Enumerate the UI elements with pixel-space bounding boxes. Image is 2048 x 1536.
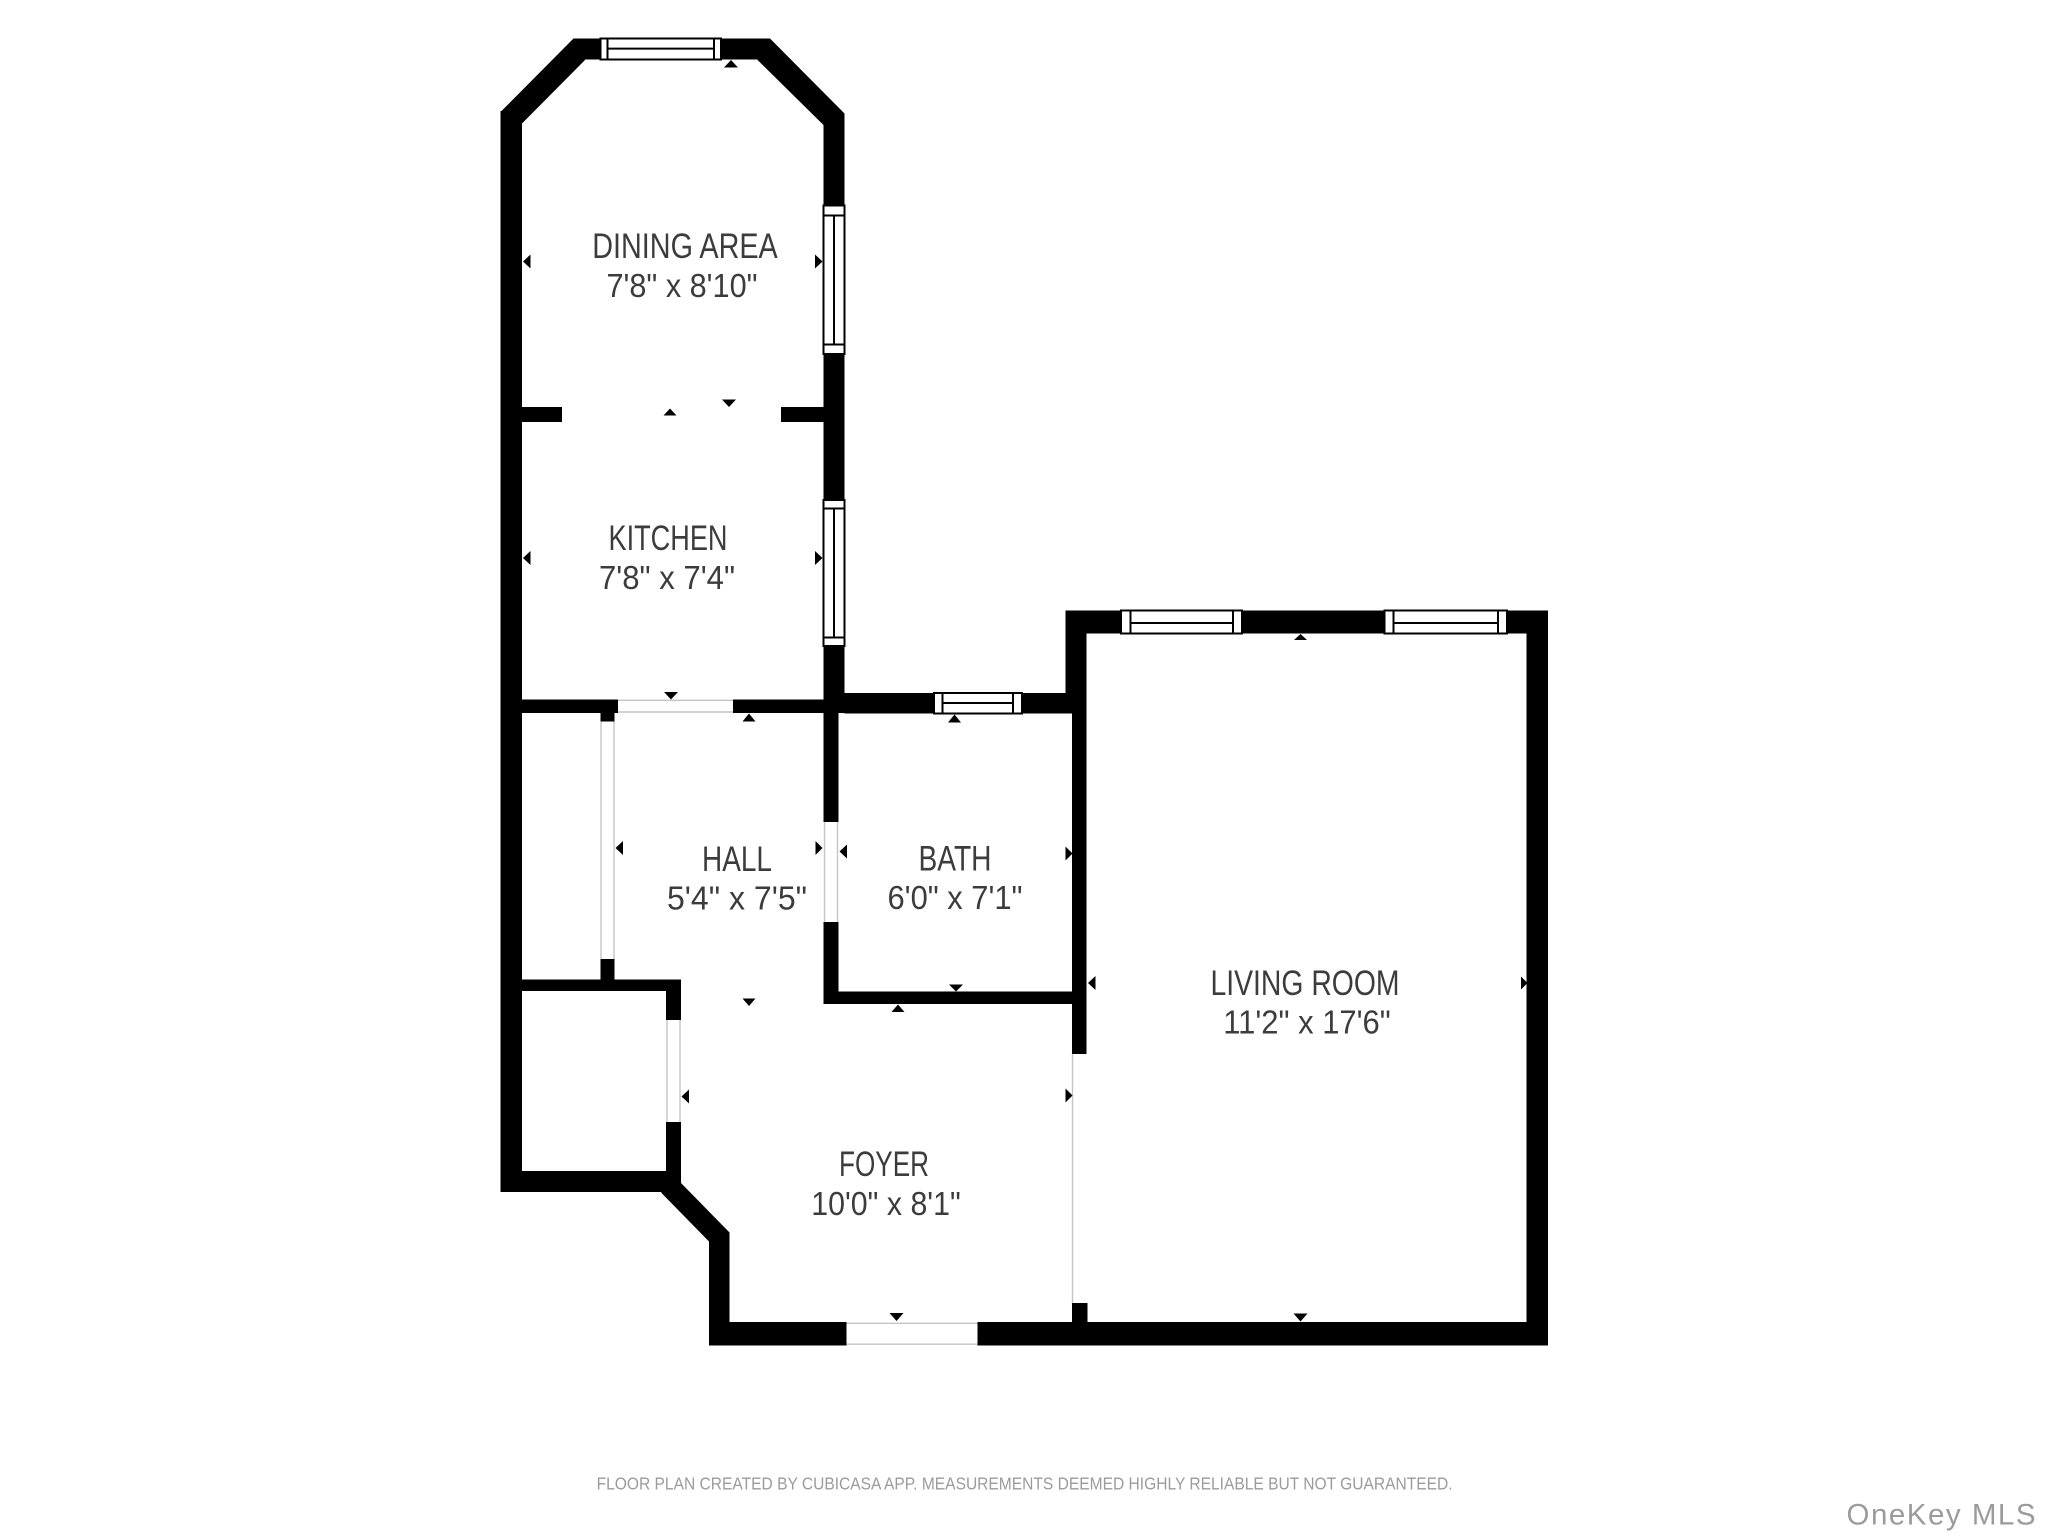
svg-text:KITCHEN: KITCHEN: [609, 519, 728, 558]
svg-text:OneKey MLS: OneKey MLS: [1847, 1499, 2037, 1532]
svg-text:BATH: BATH: [919, 840, 992, 879]
svg-text:5'4" x 7'5": 5'4" x 7'5": [667, 881, 807, 918]
svg-text:7'8" x 8'10": 7'8" x 8'10": [607, 268, 758, 305]
svg-text:FLOOR PLAN CREATED BY CUBICASA: FLOOR PLAN CREATED BY CUBICASA APP. MEAS…: [597, 1474, 1453, 1494]
svg-text:10'0" x 8'1": 10'0" x 8'1": [811, 1186, 961, 1223]
svg-text:HALL: HALL: [702, 840, 772, 879]
svg-text:LIVING ROOM: LIVING ROOM: [1211, 964, 1400, 1003]
svg-text:DINING AREA: DINING AREA: [592, 227, 778, 266]
svg-text:6'0" x 7'1": 6'0" x 7'1": [888, 880, 1023, 917]
svg-text:FOYER: FOYER: [839, 1145, 929, 1184]
svg-text:11'2" x 17'6": 11'2" x 17'6": [1223, 1005, 1391, 1042]
svg-text:7'8" x 7'4": 7'8" x 7'4": [599, 560, 735, 597]
